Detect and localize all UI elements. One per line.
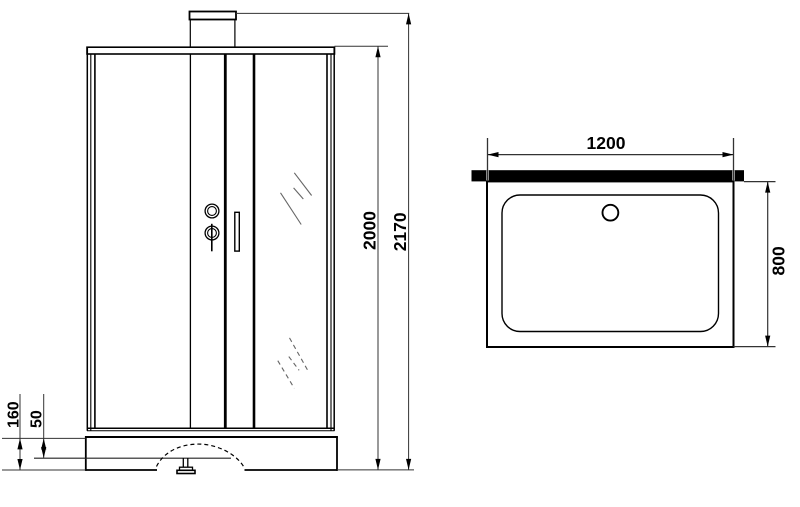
svg-text:800: 800 bbox=[769, 246, 789, 275]
svg-text:2000: 2000 bbox=[359, 211, 379, 250]
svg-text:2170: 2170 bbox=[390, 212, 410, 251]
svg-text:50: 50 bbox=[28, 410, 45, 428]
svg-text:160: 160 bbox=[5, 401, 22, 428]
svg-text:1200: 1200 bbox=[587, 133, 626, 153]
